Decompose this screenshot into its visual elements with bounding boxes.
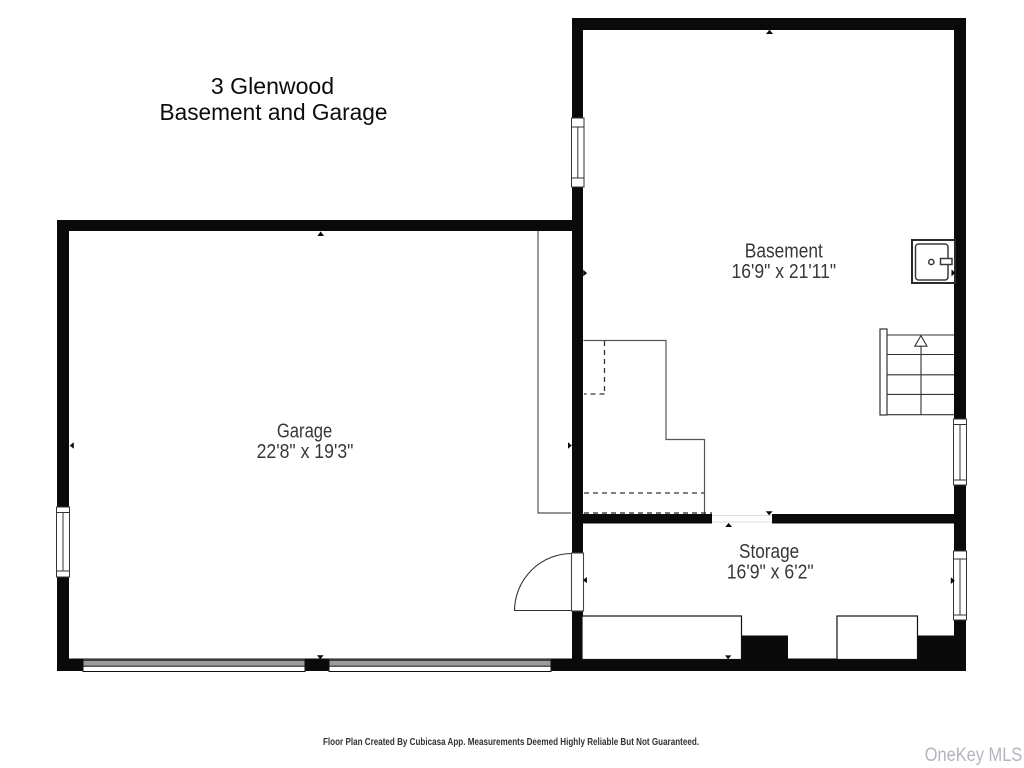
svg-text:OneKey MLS: OneKey MLS: [925, 744, 1023, 766]
svg-text:16'9" x 6'2": 16'9" x 6'2": [727, 562, 814, 584]
svg-text:Storage: Storage: [739, 541, 799, 563]
svg-text:Basement and Garage: Basement and Garage: [160, 99, 388, 125]
svg-text:Floor Plan Created By Cubicasa: Floor Plan Created By Cubicasa App. Meas…: [323, 737, 699, 748]
svg-text:22'8" x 19'3": 22'8" x 19'3": [257, 441, 354, 463]
svg-text:16'9" x 21'11": 16'9" x 21'11": [732, 261, 837, 283]
svg-text:Basement: Basement: [745, 241, 823, 263]
svg-text:Garage: Garage: [277, 421, 332, 443]
svg-text:3 Glenwood: 3 Glenwood: [211, 73, 334, 99]
